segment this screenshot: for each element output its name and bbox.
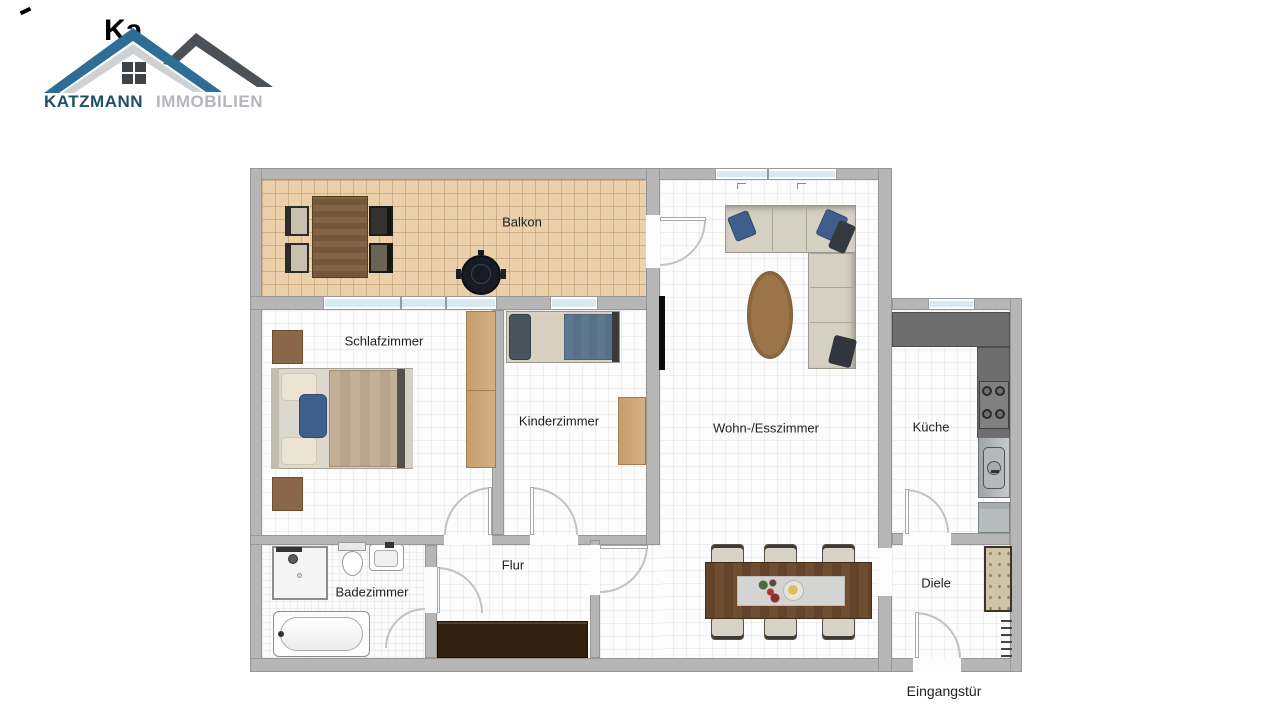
coat-hook bbox=[1001, 620, 1012, 622]
wall-tick bbox=[797, 183, 806, 189]
wardrobe-divider bbox=[467, 390, 495, 391]
shower-fixture bbox=[276, 547, 302, 552]
logo-suffix-text: IMMOBILIEN bbox=[156, 92, 263, 112]
plate-food bbox=[788, 585, 798, 595]
door-leaf bbox=[437, 567, 440, 613]
dining-chair bbox=[764, 617, 797, 640]
dining-chair bbox=[822, 617, 855, 640]
toilet-tank bbox=[338, 542, 366, 551]
coat-hook bbox=[1001, 627, 1012, 629]
bed-footboard bbox=[397, 369, 405, 468]
nightstand bbox=[272, 330, 303, 364]
grill-handle bbox=[478, 250, 484, 255]
bed-blanket bbox=[329, 370, 399, 467]
logo-window-icon bbox=[122, 62, 146, 84]
dishwasher bbox=[978, 502, 1010, 533]
coat-hook bbox=[1001, 655, 1012, 657]
sofa-cushion-line bbox=[810, 322, 854, 323]
window-schlafzimmer bbox=[323, 296, 497, 310]
room-label-diele: Diele bbox=[921, 576, 951, 591]
room-label-flur: Flur bbox=[502, 558, 524, 573]
bed-frame-edge bbox=[405, 369, 413, 468]
bathroom-sink-basin bbox=[374, 550, 398, 567]
stove-burner bbox=[995, 386, 1005, 396]
balcony-chair bbox=[369, 206, 393, 236]
door-leaf bbox=[905, 489, 909, 534]
room-label-kueche: Küche bbox=[913, 420, 950, 435]
bed-pillow bbox=[281, 437, 317, 465]
wall-tick bbox=[737, 183, 746, 189]
desk bbox=[618, 397, 646, 465]
wall bbox=[1010, 298, 1022, 672]
sofa-cushion-line bbox=[772, 207, 773, 251]
sofa-cushion-line bbox=[806, 207, 807, 251]
dining-chair bbox=[711, 617, 744, 640]
entrance-label: Eingangstür bbox=[907, 683, 982, 699]
room-label-schlafzimmer: Schlafzimmer bbox=[345, 334, 424, 349]
balcony-chair bbox=[369, 243, 393, 273]
bed-pillow-blue bbox=[299, 394, 327, 438]
kitchen-sink-faucet bbox=[991, 470, 999, 473]
stove-burner bbox=[982, 386, 992, 396]
door-opening-badezimmer bbox=[425, 567, 437, 613]
door-opening-flur-essbereich bbox=[590, 545, 600, 595]
bathtub-basin bbox=[280, 617, 363, 651]
window-kinderzimmer bbox=[550, 296, 598, 310]
logo-brand-text: KATZMANN bbox=[44, 92, 143, 112]
rug-oval bbox=[747, 271, 793, 359]
single-bed-pillow bbox=[509, 314, 531, 360]
coat-hook bbox=[1001, 634, 1012, 636]
balcony-chair bbox=[285, 206, 309, 236]
balcony-chair bbox=[285, 243, 309, 273]
door-leaf bbox=[660, 217, 706, 221]
bathtub-faucet bbox=[278, 631, 284, 637]
window-wohnzimmer bbox=[715, 168, 837, 180]
grill-side-handle bbox=[501, 269, 506, 279]
hall-sideboard bbox=[437, 621, 588, 658]
kitchen-counter-top bbox=[892, 312, 1010, 347]
door-opening-eingang bbox=[913, 658, 961, 672]
single-bed-footboard bbox=[612, 312, 619, 362]
room-label-badezimmer: Badezimmer bbox=[336, 585, 409, 600]
door-leaf bbox=[530, 487, 534, 535]
coat-hook bbox=[1001, 641, 1012, 643]
entrance-door-leaf bbox=[915, 612, 919, 658]
shower-head bbox=[288, 554, 298, 564]
floorplan-page: Ka KATZMANN IMMOBILIEN bbox=[0, 0, 1280, 720]
wall bbox=[250, 658, 1022, 672]
stove-burner bbox=[982, 409, 992, 419]
door-opening-balkon bbox=[646, 215, 660, 268]
entry-bench bbox=[984, 546, 1012, 612]
wall bbox=[250, 168, 262, 672]
flower-decoration bbox=[768, 592, 782, 604]
bathroom-sink-faucet bbox=[385, 542, 394, 548]
window-kueche bbox=[928, 298, 975, 310]
shower-drain bbox=[297, 573, 302, 578]
coat-hook bbox=[1001, 648, 1012, 650]
company-logo: Ka KATZMANN IMMOBILIEN bbox=[0, 0, 300, 125]
sofa-cushion-line bbox=[810, 253, 854, 254]
room-label-balkon: Balkon bbox=[502, 215, 542, 230]
door-opening-kueche bbox=[903, 533, 951, 545]
door-leaf bbox=[488, 487, 492, 535]
door-leaf bbox=[600, 545, 648, 549]
tv bbox=[659, 296, 665, 370]
door-opening-schlafzimmer bbox=[444, 535, 492, 545]
passage-essbereich-diele bbox=[878, 548, 892, 596]
grill-lid-detail bbox=[471, 264, 491, 284]
room-label-wohn-esszimmer: Wohn-/Esszimmer bbox=[713, 421, 819, 436]
sofa-cushion-line bbox=[810, 287, 854, 288]
wall bbox=[878, 168, 892, 672]
grill-side-handle bbox=[456, 269, 461, 279]
bed-headboard bbox=[271, 368, 279, 469]
room-label-kinderzimmer: Kinderzimmer bbox=[519, 414, 599, 429]
single-bed-blanket bbox=[564, 314, 614, 360]
stove-burner bbox=[995, 409, 1005, 419]
nightstand bbox=[272, 477, 303, 511]
balcony-table bbox=[312, 196, 368, 278]
single-bed-sheet bbox=[533, 314, 563, 360]
door-opening-kinderzimmer bbox=[530, 535, 578, 545]
